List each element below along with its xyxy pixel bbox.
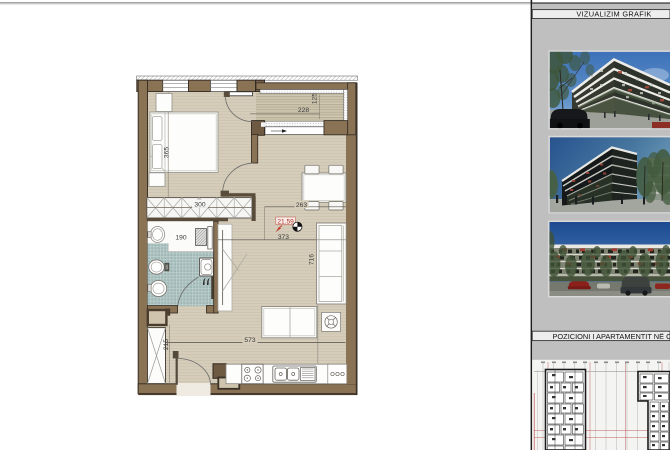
svg-text:573: 573 <box>244 337 255 344</box>
svg-text:716: 716 <box>309 254 316 265</box>
svg-text:190: 190 <box>175 235 186 242</box>
svg-text:215: 215 <box>163 339 170 350</box>
svg-text:21.59: 21.59 <box>277 218 294 225</box>
svg-text:365: 365 <box>164 147 171 158</box>
svg-text:POZICIONI I APARTAMENTIT NË OB: POZICIONI I APARTAMENTIT NË OBJ <box>553 332 670 341</box>
svg-text:VIZUALIZIM GRAFIK: VIZUALIZIM GRAFIK <box>576 10 651 19</box>
svg-text:125: 125 <box>312 93 319 104</box>
svg-text:263: 263 <box>296 202 307 209</box>
svg-text:228: 228 <box>298 107 309 114</box>
svg-text:300: 300 <box>194 202 205 209</box>
